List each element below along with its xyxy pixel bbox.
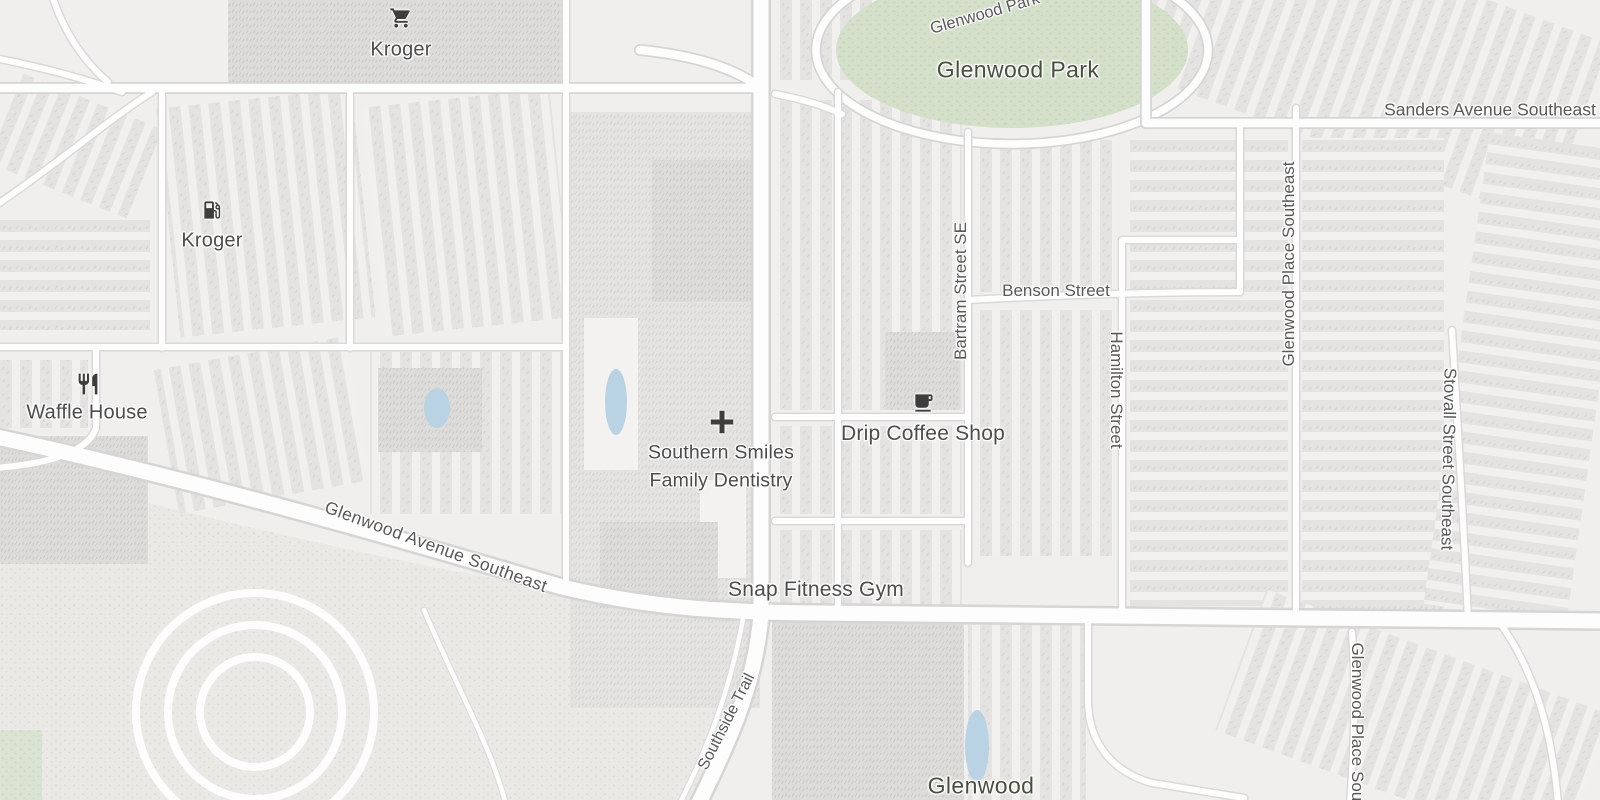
shopping-cart-icon [390, 7, 413, 30]
poi-label-waffle-house[interactable]: Waffle House [26, 402, 147, 425]
poi-label-dentistry-line2[interactable]: Family Dentistry [650, 470, 793, 493]
street-label-stovall-street: Stovall Street Southeast [1436, 368, 1459, 551]
map-viewport[interactable]: Kroger Kroger Waffle House Southern Smil… [0, 0, 1600, 800]
restaurant-icon [76, 372, 101, 397]
street-label-glenwood-avenue: Glenwood Avenue Southeast [322, 497, 550, 597]
area-label-glenwood-park: Glenwood Park [937, 57, 1099, 84]
poi-label-dentistry-line1[interactable]: Southern Smiles [648, 442, 794, 465]
street-label-sanders-avenue: Sanders Avenue Southeast [1384, 100, 1596, 121]
medical-cross-icon [707, 407, 737, 437]
street-label-glenwood-place: Glenwood Place Southeast [1279, 161, 1299, 366]
area-label-glenwood-south: Glenwood [928, 773, 1035, 800]
labels-layer: Kroger Kroger Waffle House Southern Smil… [0, 0, 1600, 800]
coffee-cup-icon [912, 392, 935, 415]
poi-label-drip-coffee[interactable]: Drip Coffee Shop [841, 422, 1005, 446]
street-label-hamilton-street: Hamilton Street [1106, 331, 1126, 448]
poi-label-kroger-fuel[interactable]: Kroger [181, 230, 242, 253]
fuel-pump-icon [201, 199, 224, 222]
street-label-southside-trail: Southside Trail [695, 671, 759, 773]
street-label-glenwood-place-south: Glenwood Place Southeast [1347, 642, 1367, 800]
poi-label-snap-fitness[interactable]: Snap Fitness Gym [728, 578, 904, 602]
street-label-glenwood-park-road: Glenwood Park [928, 0, 1042, 39]
street-label-bartram-street: Bartram Street SE [951, 222, 971, 360]
poi-label-kroger-north[interactable]: Kroger [370, 39, 431, 62]
street-label-benson-street: Benson Street [1002, 281, 1110, 301]
